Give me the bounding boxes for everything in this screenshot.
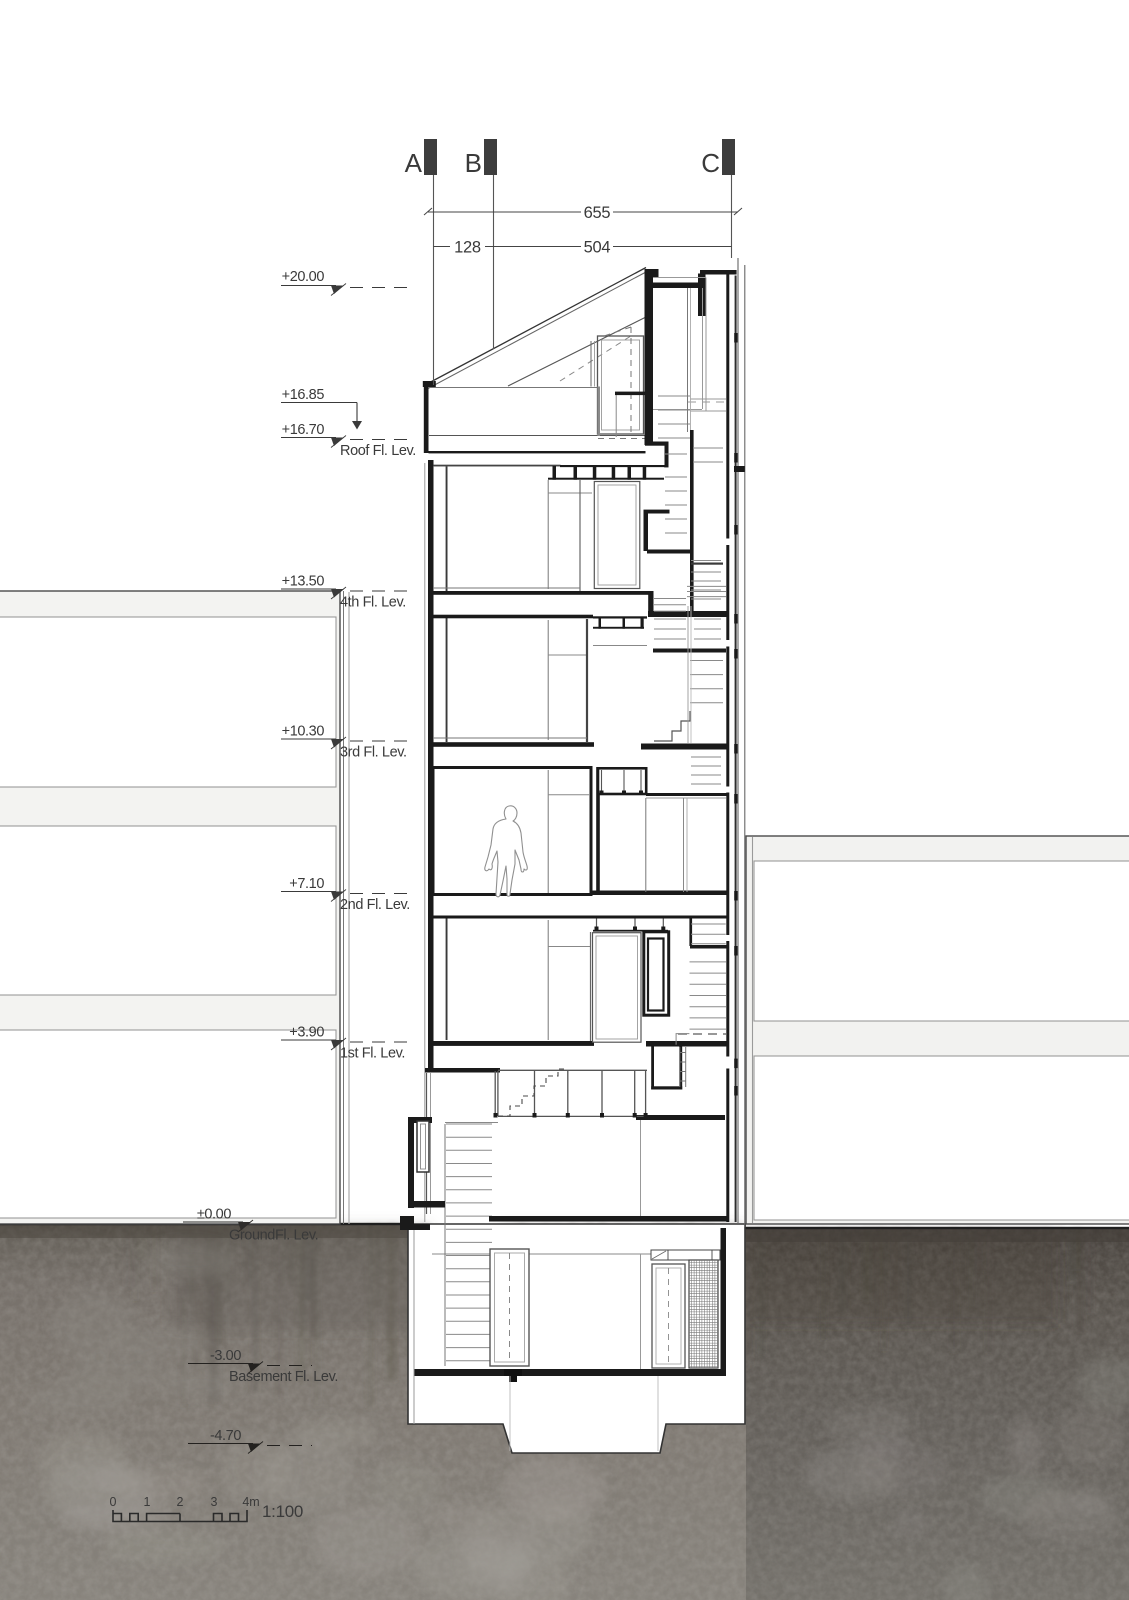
svg-text:0: 0 bbox=[110, 1495, 117, 1509]
svg-text:128: 128 bbox=[454, 239, 481, 257]
svg-text:GroundFl. Lev.: GroundFl. Lev. bbox=[229, 1228, 318, 1244]
svg-text:+3.90: +3.90 bbox=[289, 1025, 324, 1041]
svg-text:2nd Fl. Lev.: 2nd Fl. Lev. bbox=[340, 897, 410, 913]
svg-text:A: A bbox=[405, 148, 423, 178]
svg-text:504: 504 bbox=[584, 239, 611, 257]
svg-text:B: B bbox=[465, 148, 482, 178]
svg-text:C: C bbox=[701, 148, 720, 178]
svg-text:+7.10: +7.10 bbox=[289, 876, 324, 892]
svg-text:Roof Fl. Lev.: Roof Fl. Lev. bbox=[340, 443, 416, 459]
svg-text:3rd Fl. Lev.: 3rd Fl. Lev. bbox=[340, 745, 407, 761]
svg-text:2: 2 bbox=[177, 1495, 184, 1509]
svg-text:+10.30: +10.30 bbox=[282, 724, 325, 740]
svg-text:655: 655 bbox=[584, 204, 611, 222]
svg-text:4th Fl. Lev.: 4th Fl. Lev. bbox=[340, 595, 406, 611]
svg-text:1st Fl. Lev.: 1st Fl. Lev. bbox=[340, 1046, 405, 1062]
svg-text:+13.50: +13.50 bbox=[282, 574, 325, 590]
svg-text:±0.00: ±0.00 bbox=[197, 1207, 232, 1223]
svg-text:+16.85: +16.85 bbox=[282, 387, 325, 403]
svg-text:+16.70: +16.70 bbox=[282, 422, 325, 438]
svg-text:-3.00: -3.00 bbox=[210, 1348, 241, 1364]
svg-text:Basement Fl. Lev.: Basement Fl. Lev. bbox=[229, 1369, 338, 1385]
svg-text:1: 1 bbox=[144, 1495, 151, 1509]
svg-text:+20.00: +20.00 bbox=[282, 269, 325, 285]
svg-text:1:100: 1:100 bbox=[262, 1502, 303, 1521]
svg-text:3: 3 bbox=[211, 1495, 218, 1509]
svg-text:4m: 4m bbox=[242, 1495, 259, 1509]
svg-text:-4.70: -4.70 bbox=[210, 1428, 241, 1444]
